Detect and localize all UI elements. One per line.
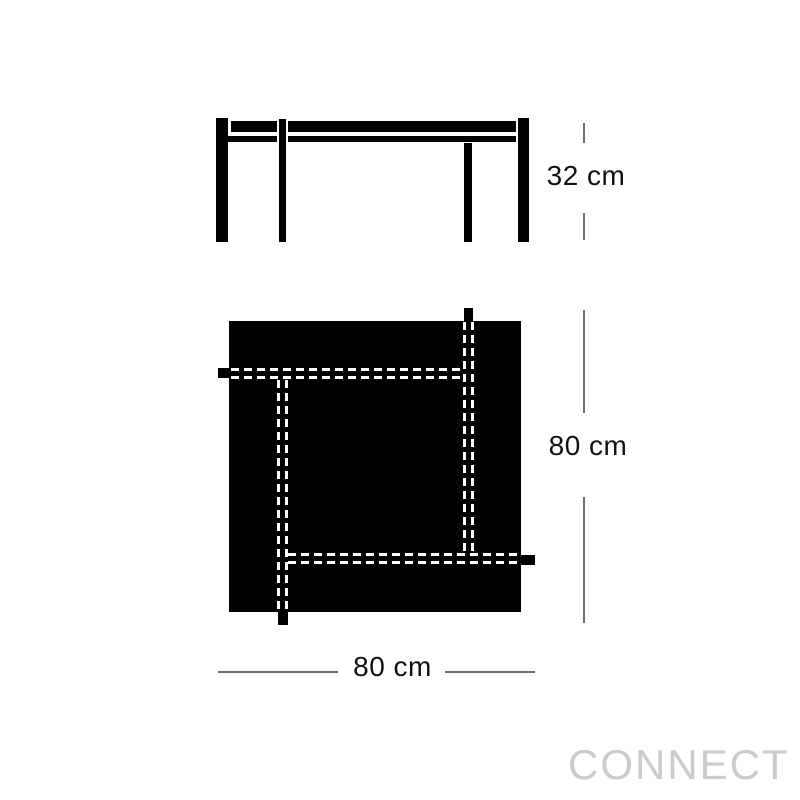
connect-watermark: CONNECT bbox=[568, 744, 790, 786]
depth-dimension-label: 80 cm bbox=[546, 432, 630, 460]
product-dimension-diagram: 32 cm 80 cm 80 cm bbox=[0, 0, 800, 800]
width-dimension-label: 80 cm bbox=[350, 653, 435, 681]
depth-dimension-line-bottom bbox=[583, 497, 585, 623]
depth-dimension-line-top bbox=[583, 310, 585, 413]
frame-bar-top-edge1 bbox=[231, 368, 463, 371]
frame-bar-right-edge1 bbox=[463, 322, 466, 553]
side-view-frame-rail-main bbox=[288, 136, 516, 142]
side-view-tabletop-main bbox=[288, 121, 516, 132]
side-view-middle-leg bbox=[279, 119, 286, 242]
side-view-frame-rail-left bbox=[228, 136, 277, 142]
side-view-left-leg bbox=[216, 118, 228, 242]
frame-end-right bbox=[520, 555, 535, 565]
width-dimension-line-right bbox=[445, 671, 535, 673]
frame-bar-left-edge2 bbox=[285, 380, 288, 610]
height-dimension-line-bottom bbox=[583, 213, 585, 240]
frame-bar-right-edge2 bbox=[471, 322, 474, 553]
frame-end-top bbox=[464, 308, 473, 322]
frame-end-left bbox=[218, 368, 230, 378]
side-view-tabletop-left bbox=[231, 121, 277, 132]
frame-bar-left-edge1 bbox=[277, 380, 280, 610]
frame-bar-bottom-edge1 bbox=[288, 553, 519, 556]
height-dimension-line-top bbox=[583, 123, 585, 143]
frame-bar-top-edge2 bbox=[231, 376, 463, 379]
width-dimension-line-left bbox=[218, 671, 338, 673]
side-view-inner-right-leg bbox=[464, 143, 472, 242]
frame-bar-bottom-edge2 bbox=[288, 561, 519, 564]
top-view-tabletop bbox=[229, 321, 521, 612]
side-view-right-leg bbox=[518, 118, 529, 242]
height-dimension-label: 32 cm bbox=[544, 162, 628, 190]
frame-end-bottom bbox=[278, 611, 288, 625]
